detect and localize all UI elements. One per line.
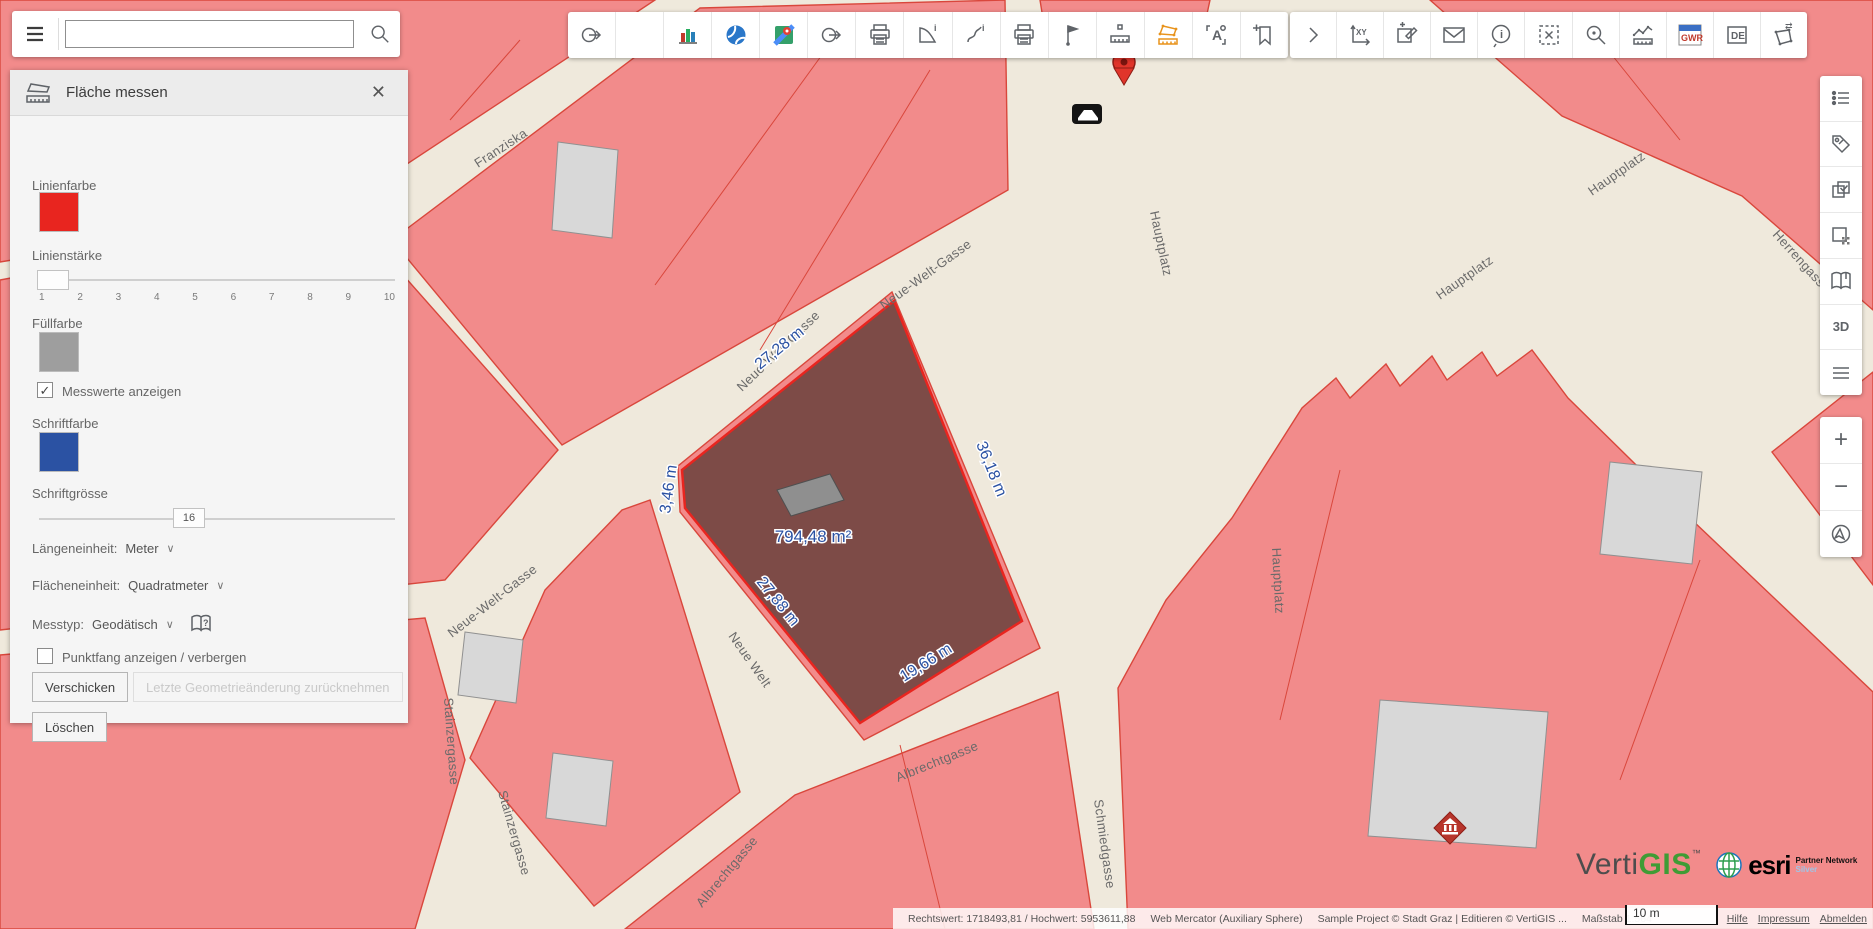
svg-text:?: ? (203, 618, 209, 628)
vertigis-logo-gis: GIS (1639, 848, 1692, 881)
panel-title: Fläche messen (66, 84, 363, 101)
info-button[interactable]: i (1477, 12, 1524, 58)
fill-color-swatch[interactable] (39, 332, 79, 372)
label-text-button[interactable]: A (1192, 12, 1240, 58)
impressum-link[interactable]: Impressum (1758, 913, 1810, 925)
tick-label: 2 (77, 292, 83, 303)
bookmark-add-button[interactable] (1240, 12, 1288, 58)
zoom-out-button[interactable]: − (1820, 464, 1862, 511)
google-maps-button[interactable] (759, 12, 807, 58)
fill-color-label: Füllfarbe (32, 316, 83, 331)
expand-toolbar-button[interactable] (1290, 12, 1336, 58)
svg-text:i: i (982, 23, 985, 33)
undo-geometry-button[interactable]: Letzte Geometrieänderung zurücknehmen (133, 672, 403, 702)
logout-link[interactable]: Abmelden (1820, 913, 1867, 925)
layers-select-icon[interactable] (1820, 167, 1862, 213)
export-view-button[interactable] (807, 12, 855, 58)
language-de-button[interactable]: DE (1713, 12, 1760, 58)
length-unit-row: Längeneinheit: Meter ∨ (32, 541, 175, 556)
google-earth-button[interactable] (711, 12, 759, 58)
chart-button[interactable] (663, 12, 711, 58)
status-links: Hilfe Impressum Abmelden (1727, 913, 1867, 925)
search-icon[interactable] (360, 11, 400, 57)
measure-area-panel: Fläche messen ✕ Linienfarbe Linienstärke… (10, 70, 408, 723)
zoom-to-point-button[interactable] (1572, 12, 1619, 58)
vertigis-logo-text: Verti (1576, 848, 1639, 881)
vertigis-logo: VertiGIS™ (1576, 848, 1701, 882)
line-width-slider-track[interactable] (39, 279, 395, 281)
flag-button[interactable] (1048, 12, 1096, 58)
coordinates-readout: Rechtswert: 1718493,81 / Hochwert: 59536… (908, 913, 1135, 925)
font-size-slider-handle[interactable]: 16 (173, 508, 205, 528)
line-color-swatch[interactable] (39, 192, 79, 232)
measure-type-row: Messtyp: Geodätisch ∨ ? (32, 614, 214, 634)
svg-text:DE: DE (1731, 31, 1745, 42)
area-unit-row: Flächeneinheit: Quadratmeter ∨ (32, 578, 224, 593)
list-lines-icon[interactable] (1820, 350, 1862, 395)
partner-network-label: Partner Network (1795, 856, 1857, 865)
measure-label-area: 794,48 m² (775, 527, 852, 546)
close-icon[interactable]: ✕ (363, 78, 394, 107)
geometry-transfer-button[interactable]: ⇄ (1760, 12, 1807, 58)
line-width-slider-handle[interactable] (37, 270, 69, 290)
esri-partner-tier: Partner Network Silver (1795, 856, 1857, 874)
menu-icon[interactable] (12, 11, 58, 57)
snapping-checkbox[interactable] (37, 648, 53, 664)
delete-button[interactable]: Löschen (32, 712, 107, 742)
sidebar-tools: 3D (1820, 76, 1862, 395)
esri-globe-icon (1715, 851, 1743, 879)
measure-distance-button[interactable] (1096, 12, 1144, 58)
svg-text:i: i (934, 23, 937, 33)
toolbar-main: i i A (568, 12, 1288, 58)
divider (58, 18, 59, 50)
search-input[interactable] (65, 20, 354, 48)
search-bar (12, 11, 400, 57)
tick-label: 4 (154, 292, 160, 303)
goto-xy-button[interactable]: XY (1336, 12, 1383, 58)
tick-label: 9 (346, 292, 352, 303)
zoom-in-button[interactable]: + (1820, 417, 1862, 464)
chevron-down-icon[interactable]: ∨ (167, 542, 175, 555)
tick-label: 10 (384, 292, 395, 303)
scale-bar: 10 m (1625, 905, 1718, 925)
show-values-checkbox[interactable]: ✓ (37, 382, 53, 398)
copyright-label: Sample Project © Stadt Graz | Editieren … (1318, 913, 1567, 925)
print-advanced-button[interactable] (1000, 12, 1048, 58)
gwr-button[interactable]: GWR (1666, 12, 1713, 58)
measure-type-label: Messtyp: (32, 617, 84, 632)
font-color-label: Schriftfarbe (32, 416, 98, 431)
transparency-icon[interactable] (1820, 213, 1862, 259)
font-size-slider-track[interactable] (39, 518, 395, 520)
trademark-symbol: ™ (1692, 848, 1702, 858)
toolbar-secondary: XY i GWR DE ⇄ (1290, 12, 1807, 58)
measure-area-button[interactable] (1144, 12, 1192, 58)
svg-text:GWR: GWR (1681, 33, 1703, 43)
tick-label: 6 (231, 292, 237, 303)
area-unit-select[interactable]: Quadratmeter (128, 578, 208, 593)
projection-label: Web Mercator (Auxiliary Sphere) (1150, 913, 1302, 925)
redlining-button[interactable] (1383, 12, 1430, 58)
show-values-label: Messwerte anzeigen (62, 384, 181, 399)
print-button[interactable] (855, 12, 903, 58)
tick-label: 8 (307, 292, 313, 303)
chevron-down-icon[interactable]: ∨ (216, 579, 224, 592)
branding: VertiGIS™ esri Partner Network Silver (1576, 848, 1857, 882)
length-unit-label: Längeneinheit: (32, 541, 117, 556)
tick-label: 1 (39, 292, 45, 303)
send-button[interactable]: Verschicken (32, 672, 128, 702)
panel-body: Linienfarbe Linienstärke 1 2 3 4 5 6 7 8… (10, 116, 408, 723)
empty-slot (615, 12, 663, 58)
profile-measure-button[interactable] (1619, 12, 1666, 58)
tick-label: 7 (269, 292, 275, 303)
line-info-button[interactable]: i (952, 12, 1000, 58)
line-width-ticks: 1 2 3 4 5 6 7 8 9 10 (39, 292, 395, 303)
font-color-swatch[interactable] (39, 432, 79, 472)
snapping-label: Punktfang anzeigen / verbergen (62, 650, 246, 665)
legend-book-icon[interactable] (1820, 259, 1862, 305)
panel-header: Fläche messen ✕ (10, 70, 408, 116)
font-size-label: Schriftgrösse (32, 486, 108, 501)
line-width-label: Linienstärke (32, 248, 102, 263)
measure-area-icon (24, 81, 54, 105)
share-map-button[interactable] (568, 12, 615, 58)
area-info-button[interactable]: i (903, 12, 951, 58)
svg-text:⇄: ⇄ (1785, 22, 1793, 31)
send-mail-button[interactable] (1430, 12, 1477, 58)
area-unit-label: Flächeneinheit: (32, 578, 120, 593)
esri-logo: esri Partner Network Silver (1715, 850, 1857, 881)
measure-type-select[interactable]: Geodätisch (92, 617, 158, 632)
help-link[interactable]: Hilfe (1727, 913, 1748, 925)
chevron-down-icon[interactable]: ∨ (166, 618, 174, 631)
tick-label: 3 (116, 292, 122, 303)
line-color-label: Linienfarbe (32, 178, 96, 193)
help-book-icon[interactable]: ? (190, 614, 214, 634)
geolocate-button[interactable] (1820, 511, 1862, 557)
status-bar: Rechtswert: 1718493,81 / Hochwert: 59536… (893, 908, 1873, 929)
length-unit-select[interactable]: Meter (125, 541, 158, 556)
esri-logo-text: esri (1748, 850, 1790, 881)
toc-list-icon[interactable] (1820, 76, 1862, 122)
partner-tier-label: Silver (1795, 865, 1857, 874)
svg-text:i: i (1500, 29, 1503, 41)
tag-label-icon[interactable] (1820, 122, 1862, 168)
view-3d-button[interactable]: 3D (1820, 305, 1862, 351)
tick-label: 5 (192, 292, 198, 303)
svg-text:XY: XY (1356, 28, 1367, 37)
clear-selection-button[interactable] (1524, 12, 1571, 58)
sidebar-zoom: + − (1820, 417, 1862, 557)
panorama-poi-icon (1072, 104, 1102, 124)
